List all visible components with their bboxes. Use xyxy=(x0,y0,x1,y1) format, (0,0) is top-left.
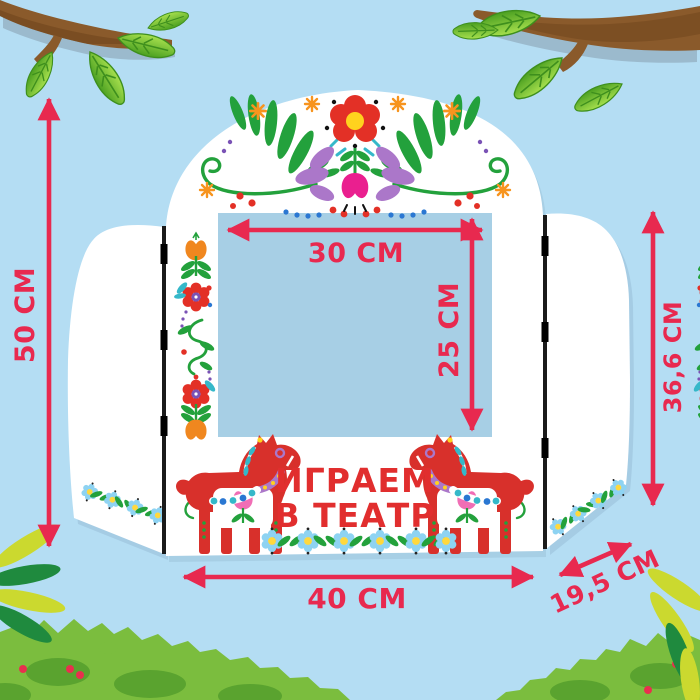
theater-title-line2: В ТЕАТР xyxy=(275,496,436,535)
overall-width-label: 40 СМ xyxy=(307,582,407,615)
asterisk-icon xyxy=(200,183,214,197)
wing-height-label: 36,6 СМ xyxy=(659,301,687,414)
asterisk-icon xyxy=(250,103,265,118)
asterisk-icon xyxy=(391,97,405,111)
theater-title-line1: ИГРАЕМ xyxy=(275,461,435,500)
asterisk-icon xyxy=(305,97,319,111)
asterisk-icon xyxy=(496,183,510,197)
window-width-label: 30 СМ xyxy=(308,238,404,269)
product-dimension-illustration: ИГРАЕМ В ТЕАТР xyxy=(0,0,700,700)
scene-canvas: ИГРАЕМ В ТЕАТР xyxy=(0,0,700,700)
window-height-label: 25 СМ xyxy=(434,282,465,378)
asterisk-icon xyxy=(444,103,459,118)
overall-height-label: 50 СМ xyxy=(10,267,41,363)
